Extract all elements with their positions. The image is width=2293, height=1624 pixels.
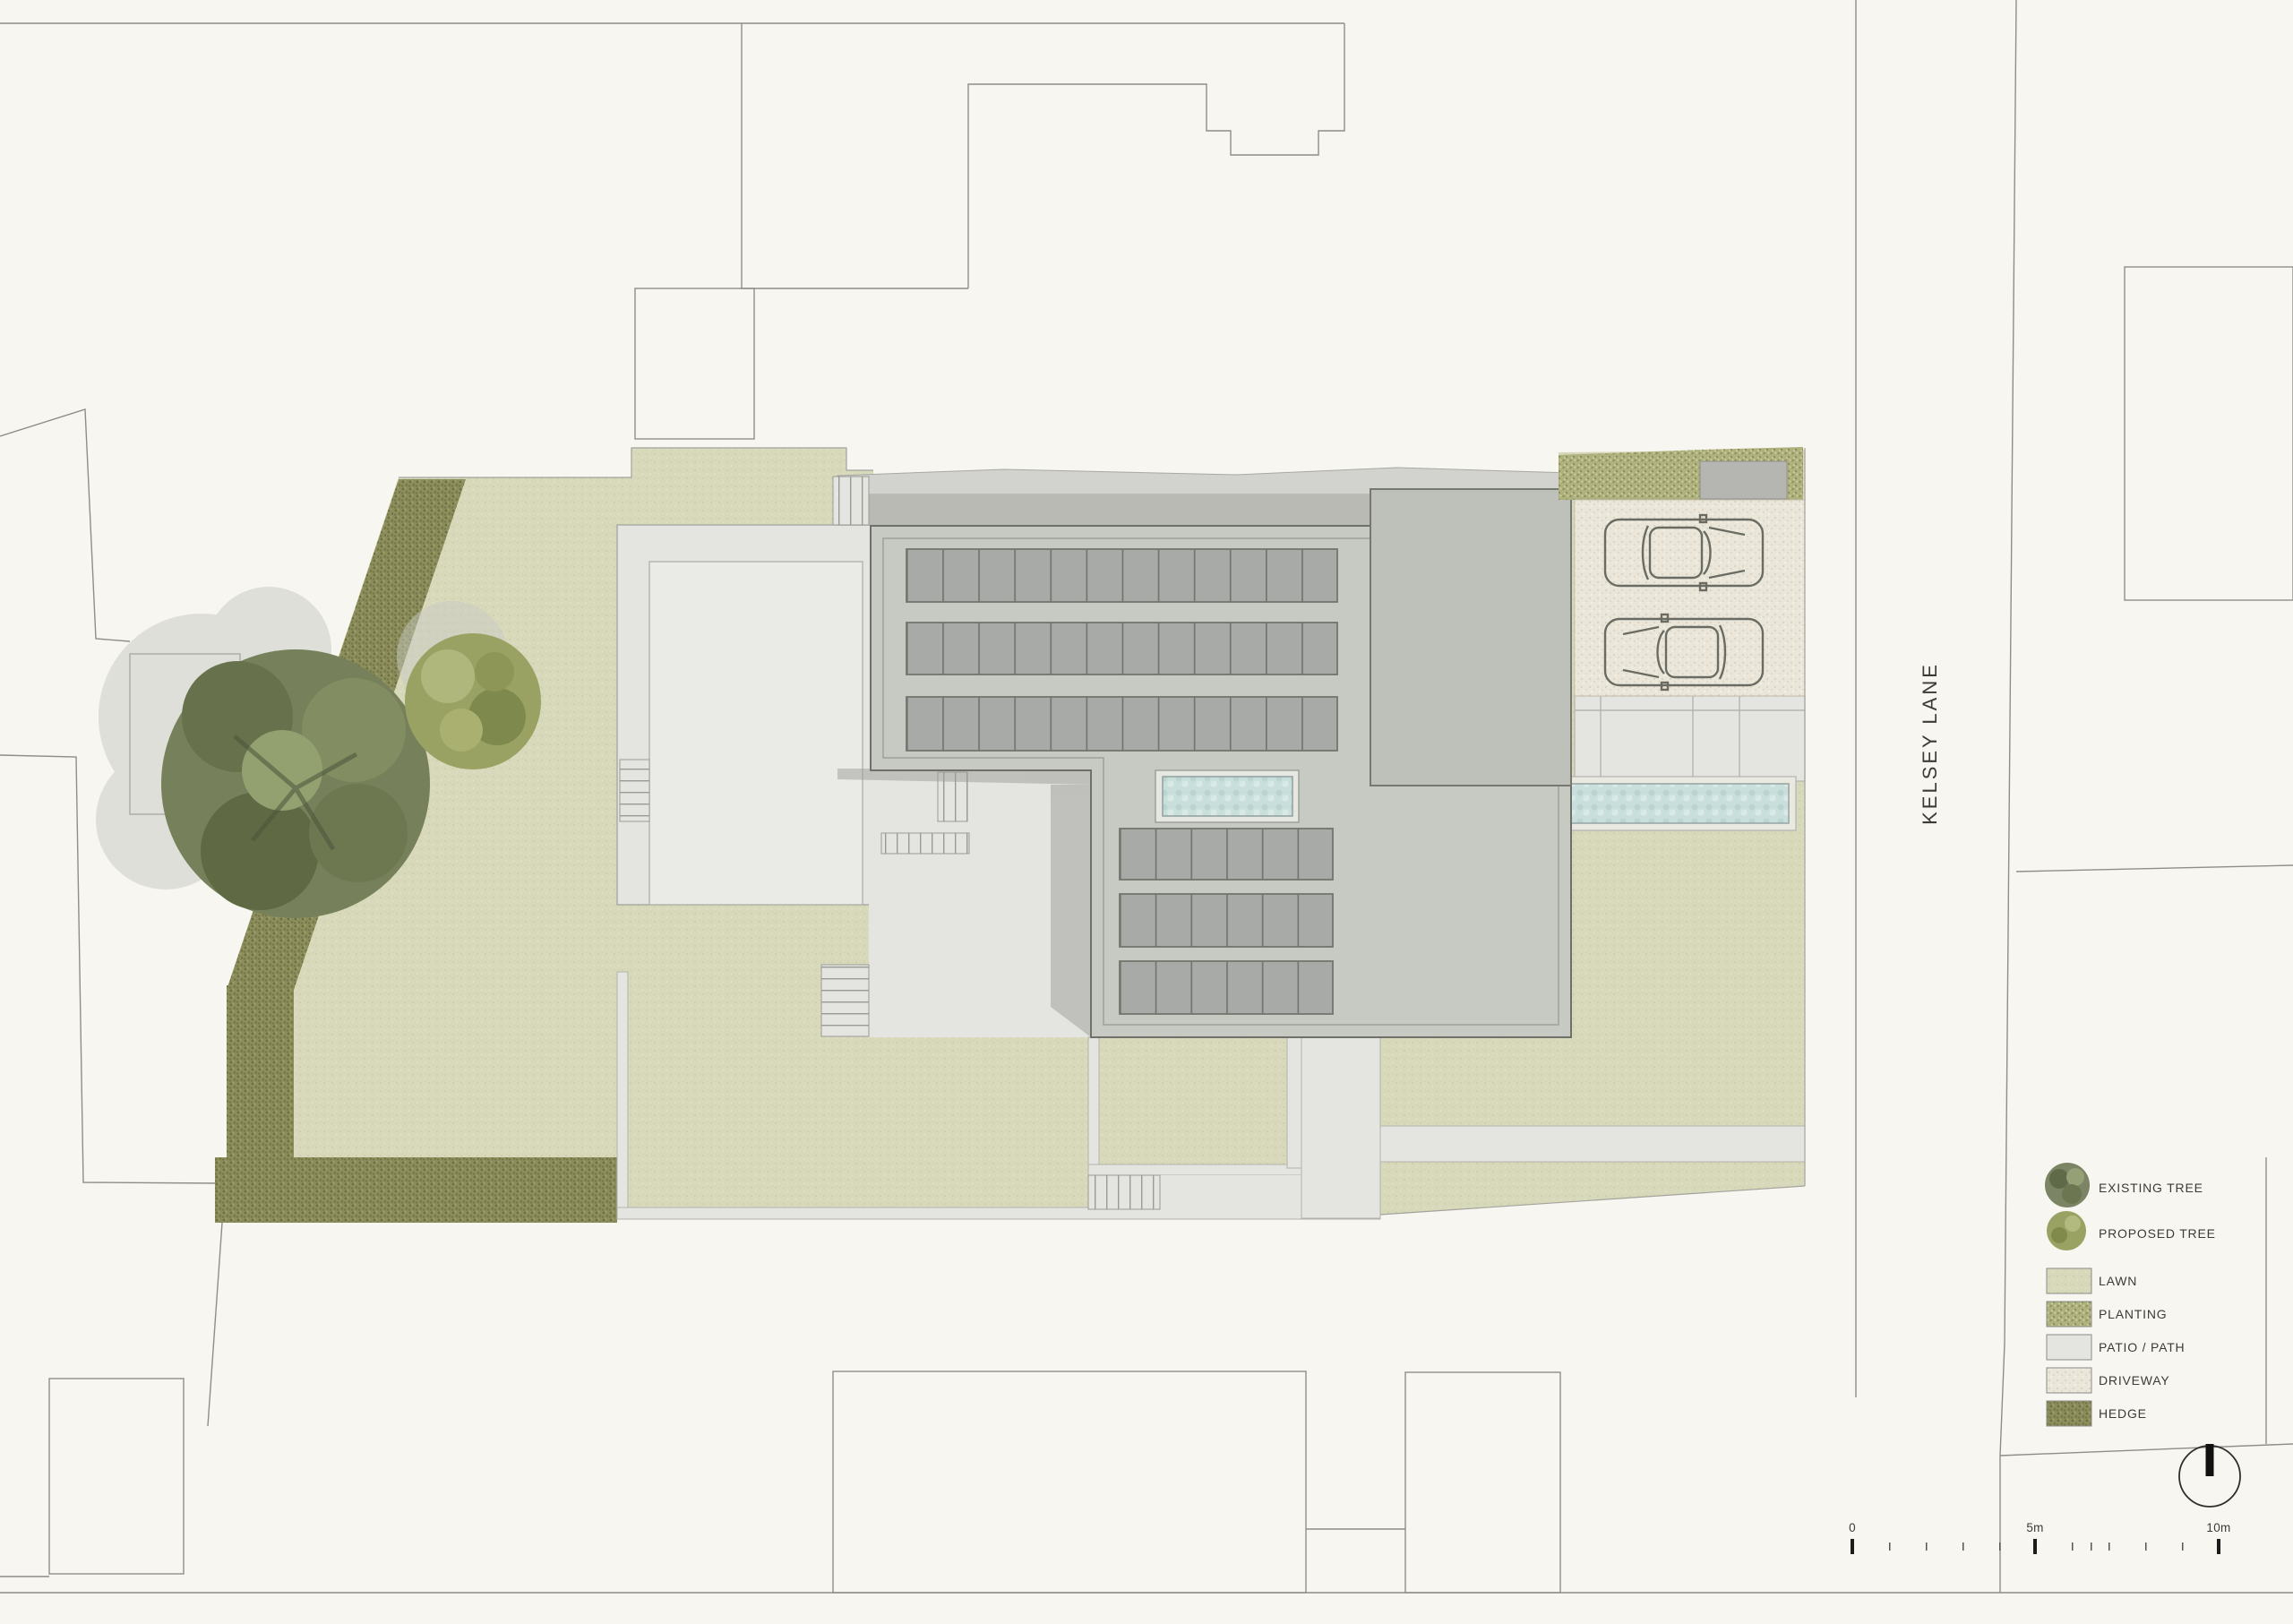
scale-tick (1926, 1542, 1928, 1551)
paving-slabs (1575, 696, 1805, 781)
courtyard-pool (1163, 777, 1292, 816)
scale-tick-label: 0 (1849, 1521, 1856, 1534)
hedge-west (227, 985, 294, 1157)
canopy-blob (421, 649, 475, 703)
scale-tick (2217, 1539, 2220, 1554)
legend-label: PATIO / PATH (2099, 1340, 2185, 1354)
hedge-swatch (2047, 1401, 2091, 1426)
scale-tick (1962, 1542, 1964, 1551)
legend-label: EXISTING TREE (2099, 1181, 2203, 1195)
driveway (1575, 500, 1805, 696)
steps-south-terrace (821, 965, 869, 1036)
steps-west-patio (620, 760, 649, 821)
garden-path (1088, 1037, 1099, 1175)
canopy-blob (201, 792, 319, 910)
west-garden-path (617, 972, 628, 1218)
scale-tick (2108, 1542, 2110, 1551)
legend-canopy-blob (2066, 1168, 2084, 1186)
scale-tick (2033, 1539, 2037, 1554)
legend-label: HEDGE (2099, 1406, 2147, 1421)
solar-array-row (906, 549, 1337, 602)
canopy-blob (440, 709, 483, 752)
solar-array-row (1120, 961, 1333, 1014)
scale-tick (1999, 1542, 2001, 1551)
scale-tick (2182, 1542, 2184, 1551)
planting-swatch (2047, 1302, 2091, 1327)
driveway-swatch (2047, 1368, 2091, 1393)
patio-swatch (2047, 1335, 2091, 1360)
site-plan-drawing: KELSEY LANE EXISTING TREE PROPOSED TREE … (0, 0, 2293, 1620)
north-arrow-needle (2206, 1444, 2214, 1476)
lap-pool (1566, 784, 1789, 823)
scale-tick-label: 5m (2026, 1521, 2043, 1534)
steps-north (833, 477, 869, 525)
legend-label: PROPOSED TREE (2099, 1226, 2216, 1241)
steps-terrace-wide (881, 833, 969, 854)
scale-tick (1851, 1539, 1854, 1554)
legend-canopy-blob (2065, 1216, 2081, 1232)
canopy-blob (242, 730, 322, 811)
scale-tick (1889, 1542, 1891, 1551)
solar-array-row (1120, 894, 1333, 947)
existing-tree (161, 649, 430, 918)
lawn-swatch (2047, 1268, 2091, 1293)
garage-roof (1370, 489, 1571, 786)
shadow-band (1051, 785, 1091, 1037)
east-court (1559, 696, 1805, 830)
scale-tick (2145, 1542, 2147, 1551)
existing-tree-icon (2045, 1163, 2090, 1207)
scale-tick-label: 10m (2206, 1521, 2230, 1534)
central-path (1301, 1037, 1380, 1218)
entrance-court (1559, 447, 1805, 696)
road-label: KELSEY LANE (1919, 662, 1941, 825)
garden-path (1088, 1164, 1301, 1175)
garden-path (1287, 1037, 1301, 1168)
site-plan: KELSEY LANE EXISTING TREE PROPOSED TREE … (0, 0, 2293, 1620)
legend-canopy-blob (2051, 1227, 2067, 1243)
legend-label: LAWN (2099, 1274, 2137, 1288)
west-patio-inner (649, 562, 863, 905)
proposed-tree (405, 633, 541, 769)
legend-canopy-blob (2062, 1184, 2082, 1204)
legend-canopy-blob (2049, 1169, 2069, 1189)
solar-array-row (1120, 829, 1333, 880)
solar-array-row (906, 697, 1337, 751)
hedge-south (215, 1157, 617, 1223)
bin-store (1700, 461, 1787, 499)
proposed-tree-icon (2047, 1211, 2086, 1250)
legend-label: DRIVEWAY (2099, 1373, 2170, 1388)
east-path (1380, 1126, 1805, 1162)
scale-tick (2091, 1542, 2092, 1551)
scale-tick (2072, 1542, 2074, 1551)
legend-label: PLANTING (2099, 1307, 2167, 1321)
canopy-blob (475, 652, 514, 692)
solar-array-row (906, 623, 1337, 675)
steps-south-path (1088, 1175, 1160, 1209)
